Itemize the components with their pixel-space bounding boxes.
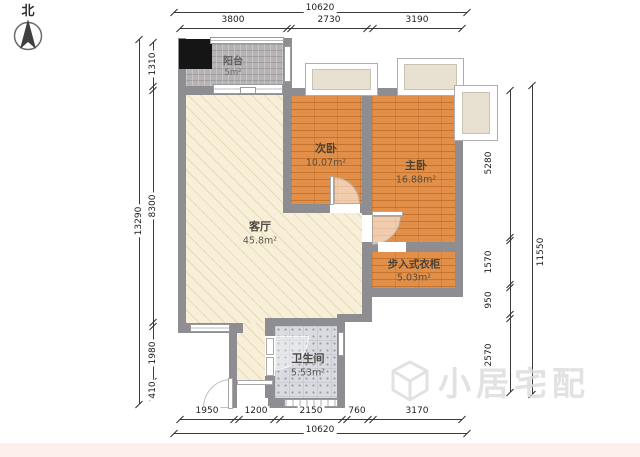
shaft-block — [179, 39, 212, 69]
closet-area: 5.03m² — [397, 273, 431, 284]
wall-living-bedroom2 — [283, 95, 291, 204]
bathroom-label: 卫生间 — [292, 350, 325, 366]
watermark-text: 小居宅配 — [438, 357, 590, 405]
bedroom2-bay-fill — [312, 69, 371, 90]
dim-bottom-total: 10620 — [304, 425, 337, 435]
bedroom2-door-opening — [330, 204, 360, 213]
living-bottom-window — [190, 324, 230, 332]
wall-left — [178, 38, 186, 333]
dim-left-total: 13290 — [134, 205, 144, 238]
living-room-area: 45.8m² — [243, 236, 277, 247]
watermark: 小居宅配 — [390, 358, 590, 404]
wall-step — [337, 314, 372, 322]
wall-bathroom-top — [265, 318, 345, 326]
dim-bottom-2: 1200 — [243, 406, 270, 416]
master-bedroom-area: 16.88m² — [396, 175, 436, 186]
bedroom2-door-leaf — [330, 176, 334, 205]
master-door-leaf — [372, 211, 403, 216]
living-room-floor-right — [283, 213, 362, 318]
watermark-logo-icon — [390, 359, 430, 403]
living-room-floor — [186, 95, 283, 323]
north-label: 北 — [21, 4, 34, 19]
bathroom-door-leaf-b — [266, 357, 274, 376]
footer-strip — [0, 443, 640, 457]
dim-right-2: 1570 — [484, 249, 494, 276]
north-arrow-icon: 北 — [8, 2, 48, 56]
balcony-label: 阳台 — [223, 53, 243, 68]
hallway-threshold — [237, 380, 273, 385]
dim-left-3: 1980 — [148, 340, 158, 367]
dim-line-top-seg — [180, 28, 462, 29]
living-room-label: 客厅 — [249, 218, 271, 234]
dim-right-total: 11550 — [536, 236, 546, 269]
closet-label: 步入式衣柜 — [388, 257, 441, 272]
wall-bathroom-right — [337, 314, 345, 408]
balcony-slider-notch — [240, 87, 256, 94]
compass: 北 — [8, 2, 48, 56]
bathroom-area: 5.53m² — [291, 368, 325, 379]
dim-left-4: 410 — [148, 379, 158, 400]
closet-opening — [378, 242, 406, 252]
dim-bottom-5: 3170 — [404, 406, 431, 416]
dim-top-1: 3800 — [220, 15, 247, 25]
dim-right-1: 5280 — [484, 150, 494, 177]
entry-door-leaf — [228, 378, 233, 409]
second-bedroom-area: 10.07m² — [306, 158, 346, 169]
bathroom-side-window — [338, 332, 344, 356]
dim-top-2: 2730 — [316, 15, 343, 25]
dim-top-3: 3190 — [404, 15, 431, 25]
balcony-side-window — [284, 46, 291, 82]
master-bay-fill — [404, 64, 457, 90]
master-door-opening — [362, 215, 372, 242]
wall-closet-left — [362, 252, 372, 322]
dim-right-3: 950 — [484, 289, 494, 310]
dim-top-total: 10620 — [304, 3, 337, 13]
dim-bottom-1: 1950 — [194, 406, 221, 416]
dim-line-bottom-seg — [180, 419, 462, 420]
dim-left-2: 8300 — [148, 193, 158, 220]
dim-line-right-total — [532, 85, 533, 394]
second-bedroom-label: 次卧 — [315, 140, 337, 156]
balcony-top-window — [210, 37, 284, 44]
balcony-area: 5m² — [224, 68, 241, 78]
master-side-bay-fill — [462, 92, 490, 134]
master-bedroom-label: 主卧 — [405, 157, 427, 173]
dim-bottom-4: 760 — [346, 406, 367, 416]
floorplan-canvas: 阳台 5m² 次卧 10.07m² 主卧 16.88m² 客厅 45.8m² 步… — [0, 0, 640, 457]
wall-closet-bottom — [362, 288, 463, 297]
dim-left-1: 1310 — [148, 51, 158, 78]
wall-bedroom2-master — [362, 95, 372, 215]
bathroom-door-leaf-a — [266, 338, 274, 355]
dim-bottom-3: 2150 — [298, 406, 325, 416]
entry-door-arc — [203, 379, 231, 408]
